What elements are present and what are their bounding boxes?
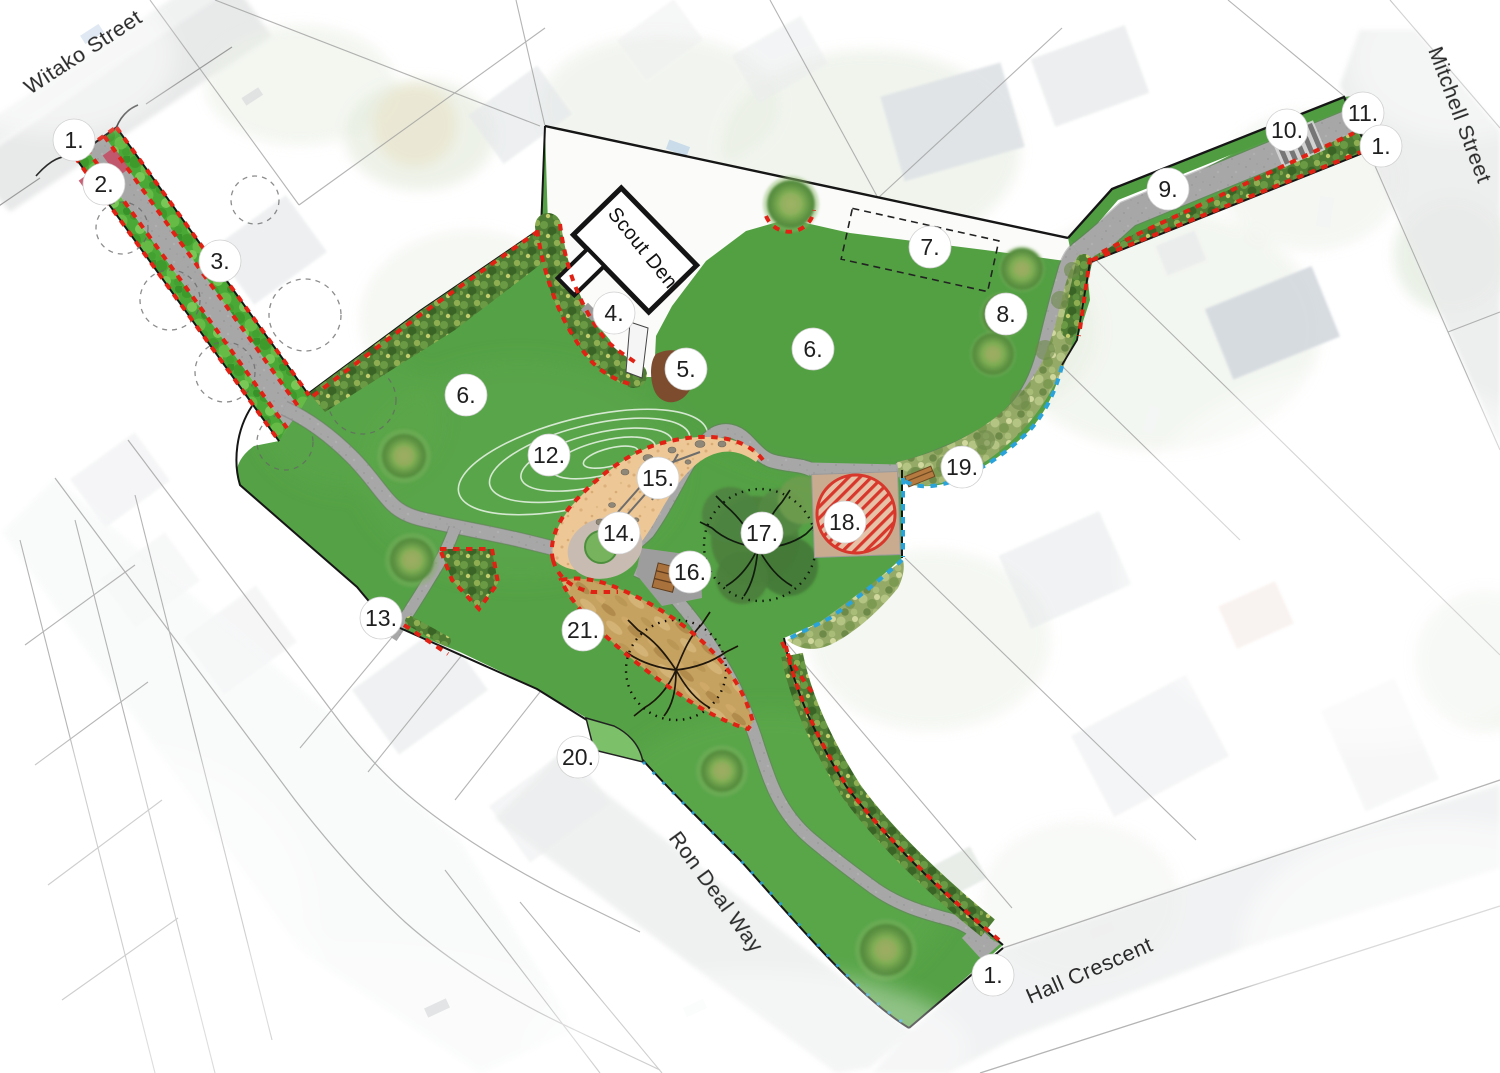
svg-text:10.: 10. xyxy=(1271,117,1303,143)
svg-text:6.: 6. xyxy=(456,382,475,408)
svg-text:12.: 12. xyxy=(533,442,565,468)
svg-text:11.: 11. xyxy=(1348,100,1378,126)
svg-text:9.: 9. xyxy=(1158,176,1177,202)
svg-text:2.: 2. xyxy=(94,171,113,197)
svg-text:1.: 1. xyxy=(983,962,1002,988)
svg-text:18.: 18. xyxy=(829,509,861,535)
svg-text:14.: 14. xyxy=(603,520,635,546)
svg-text:1.: 1. xyxy=(1371,133,1390,159)
svg-text:4.: 4. xyxy=(604,300,623,326)
svg-text:8.: 8. xyxy=(996,301,1015,327)
svg-text:16.: 16. xyxy=(674,559,706,585)
svg-text:19.: 19. xyxy=(946,454,978,480)
svg-text:20.: 20. xyxy=(562,744,594,770)
svg-text:1.: 1. xyxy=(64,127,83,153)
svg-text:6.: 6. xyxy=(803,336,822,362)
svg-text:5.: 5. xyxy=(676,356,695,382)
svg-text:7.: 7. xyxy=(920,234,939,260)
svg-text:13.: 13. xyxy=(365,605,397,631)
svg-text:15.: 15. xyxy=(642,465,674,491)
svg-text:3.: 3. xyxy=(210,248,229,274)
svg-text:21.: 21. xyxy=(567,617,599,643)
svg-text:17.: 17. xyxy=(746,520,778,546)
